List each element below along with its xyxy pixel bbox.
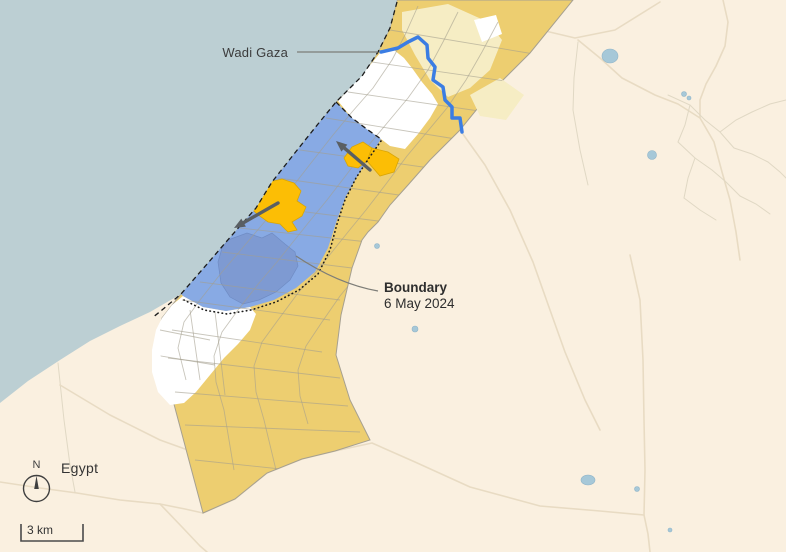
pond	[412, 326, 418, 332]
pond	[687, 96, 691, 100]
pond	[581, 475, 595, 485]
pond	[375, 244, 380, 249]
map-graphic	[0, 0, 786, 552]
pond	[648, 151, 657, 160]
pond	[602, 49, 618, 63]
pond	[682, 92, 687, 97]
pond	[668, 528, 672, 532]
pond	[635, 487, 640, 492]
map-canvas: Wadi Gaza Boundary 6 May 2024 Egypt N 3 …	[0, 0, 786, 552]
